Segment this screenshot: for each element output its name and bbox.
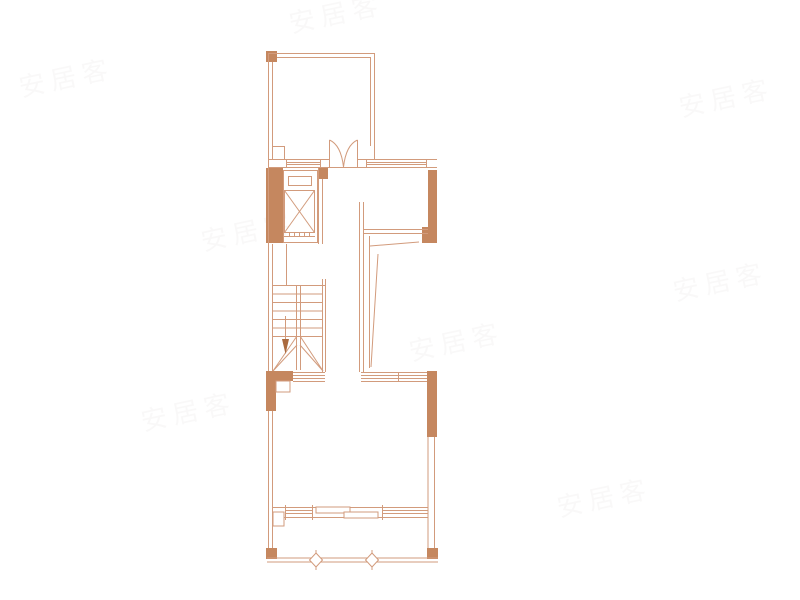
corner-wall-block xyxy=(266,51,277,62)
corner-wall-block xyxy=(266,371,276,411)
top-room xyxy=(266,51,375,167)
sliding-door-icon xyxy=(316,507,378,518)
duct-notch xyxy=(273,512,284,526)
elevator-block xyxy=(266,168,328,244)
corner-wall-block xyxy=(427,548,438,559)
elevator-icon xyxy=(284,171,318,243)
void-walls xyxy=(360,202,429,372)
wall-lines xyxy=(268,159,437,168)
balcony xyxy=(266,505,438,570)
double-swing-door-icon xyxy=(330,140,358,167)
corner-wall-block xyxy=(266,548,277,559)
right-wall-block xyxy=(427,371,437,437)
top-window-lines xyxy=(293,372,427,382)
stair-direction-arrow-icon xyxy=(282,316,289,354)
drain-symbol-icon xyxy=(366,550,379,570)
void-area xyxy=(360,170,438,372)
right-wall-block xyxy=(428,170,437,243)
floorplan-canvas: 安居客 安居客 安居客 安居客 安居客 安居客 安居客 安居客 xyxy=(0,0,800,600)
wall-pier-block xyxy=(319,168,328,179)
drain-symbol-icon xyxy=(310,550,323,570)
stair-treads xyxy=(272,285,325,371)
shaft-walls xyxy=(319,168,323,244)
lower-room xyxy=(266,371,437,549)
mid-window-wall xyxy=(268,140,437,168)
balcony-rail-lines xyxy=(267,558,438,562)
duct-notch xyxy=(276,381,290,392)
side-walls xyxy=(269,411,435,549)
floorplan-drawing xyxy=(0,0,800,600)
duct-notch xyxy=(273,147,285,160)
